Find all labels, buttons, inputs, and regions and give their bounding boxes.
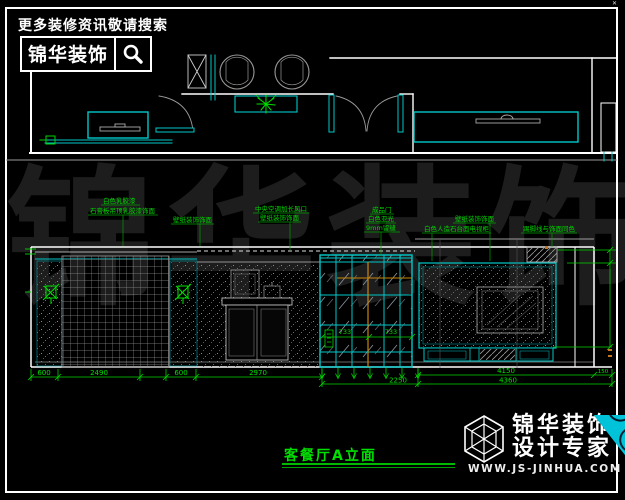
elevation: 733 733 xyxy=(25,196,616,387)
brand-logo-text: 锦华装饰 xyxy=(22,38,114,70)
wallpaper-panel xyxy=(170,261,197,366)
corner-mark: ✕ xyxy=(612,0,621,5)
search-icon xyxy=(116,38,150,70)
plan-right-column xyxy=(601,103,616,152)
dim-text: 4360 xyxy=(499,377,517,385)
tv-cabinet xyxy=(424,348,553,361)
annotation-leaders xyxy=(88,205,577,261)
drawing-title-block: 客餐厅A立面 xyxy=(282,447,455,468)
search-tip-text: 更多装修资讯敬请搜索 xyxy=(18,15,168,35)
annotation-label: 白色人造石台面电视柜 xyxy=(424,224,490,233)
award-ribbon: A D C xyxy=(589,415,625,500)
glass-partition: 733 733 xyxy=(319,255,415,367)
lattice-screen xyxy=(62,256,169,367)
plan-tv-console xyxy=(88,112,148,138)
annotation-label: 成品门 xyxy=(372,205,392,214)
ribbon-letter-a: A xyxy=(602,415,625,427)
dim-text: 2970 xyxy=(249,369,267,377)
brand-logo-box: 锦华装饰 xyxy=(20,36,152,72)
dim-text: 2490 xyxy=(90,369,108,377)
annotation-label: 壁纸装饰饰面 xyxy=(173,215,213,224)
annotation-label: 白色乳胶漆 xyxy=(103,196,136,205)
grid-dim-text: 733 xyxy=(385,328,397,336)
plan-chair xyxy=(220,55,254,89)
plan-column xyxy=(188,55,206,88)
plan-door-arc xyxy=(159,96,193,131)
dimensions xyxy=(28,368,615,387)
right-dim-lines xyxy=(553,247,616,350)
plan-wall-tv xyxy=(476,115,540,123)
annotations: 白色乳胶漆 石膏板吊顶乳胶漆饰面 壁纸装饰饰面 中央空调加长风口 壁纸装饰饰面 … xyxy=(90,196,576,233)
annotation-label: 9mm留缝 xyxy=(366,223,396,232)
dim-text: 600 xyxy=(37,369,50,377)
plan-door-leaf xyxy=(156,128,194,132)
plan-double-door xyxy=(329,95,403,132)
plan-chair xyxy=(275,55,309,89)
annotation-label: 踢脚线与饰面同色 xyxy=(523,224,576,233)
wallpaper-panel xyxy=(37,261,62,366)
grid-dim-text: 733 xyxy=(339,328,351,336)
annotation-label: 白色亚光 xyxy=(368,214,395,223)
annotation-label: 壁纸装饰饰面 xyxy=(260,213,300,222)
ribbon-clip: A D C xyxy=(575,415,625,500)
corner-hatch-block xyxy=(527,247,557,262)
dim-text: 600 xyxy=(174,369,187,377)
annotation-label: 石膏板吊顶乳胶漆饰面 xyxy=(90,206,156,215)
console-cabinet xyxy=(222,298,292,360)
dim-text: 2250 xyxy=(389,377,407,385)
dim-text: 150 xyxy=(598,369,609,375)
cad-sheet: 锦华装饰 xyxy=(0,0,625,500)
dim-text: 4150 xyxy=(497,367,515,375)
ribbon-letter-d: D xyxy=(614,422,625,458)
drawing-title: 客餐厅A立面 xyxy=(283,447,377,464)
annotation-label: 中央空调加长风口 xyxy=(255,204,307,213)
plan-counter xyxy=(414,112,578,142)
cube-logo-icon xyxy=(462,414,506,464)
tv-wall xyxy=(419,240,616,368)
annotation-label: 壁纸装饰饰面 xyxy=(455,214,495,223)
plan-plant xyxy=(256,95,276,113)
